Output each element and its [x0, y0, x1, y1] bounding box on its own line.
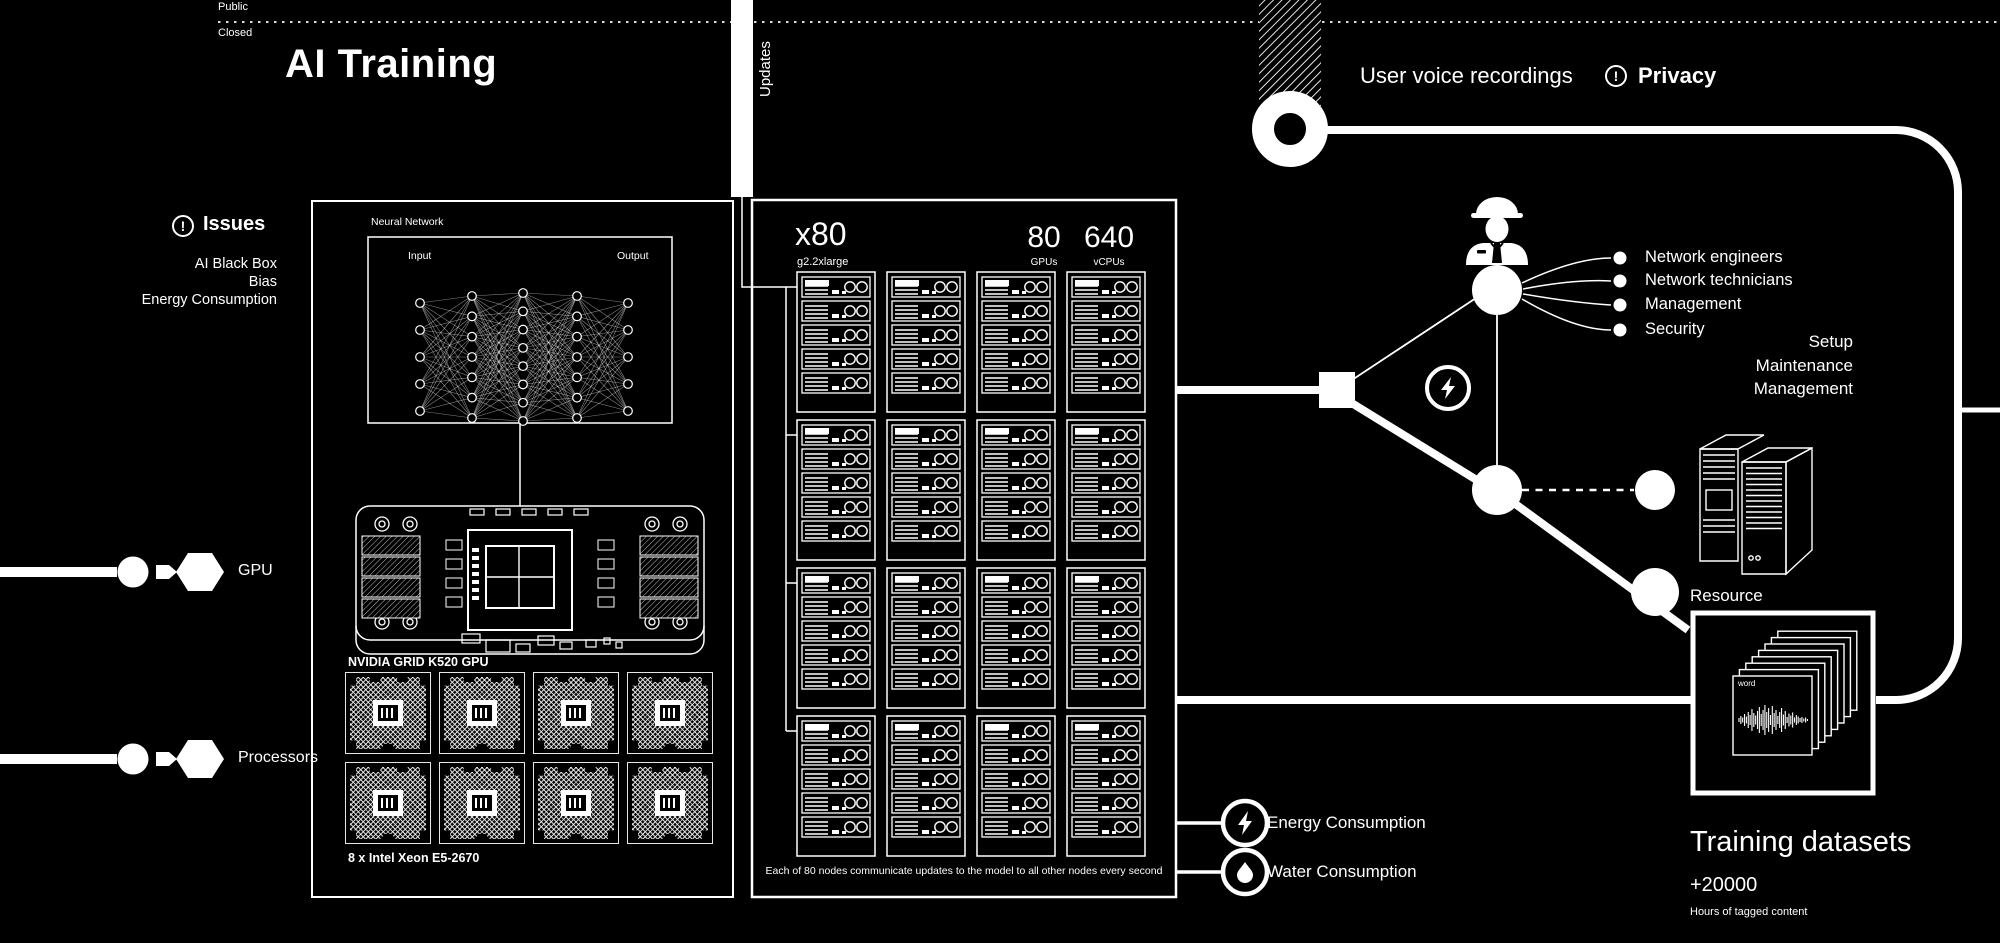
duty-management: Management [1754, 377, 1853, 401]
gpu-caption: NVIDIA GRID K520 GPU [348, 655, 489, 669]
xeon-chip [627, 762, 713, 844]
closed-label: Closed [218, 27, 252, 39]
xeon-chip [627, 672, 713, 754]
processors-legend-label: Processors [238, 749, 318, 767]
user-voice-label: User voice recordings [1360, 63, 1573, 89]
pointer-icon [156, 752, 177, 766]
voice-source-node [1263, 102, 1317, 156]
cluster-caption: Each of 80 nodes communicate updates to … [754, 865, 1174, 877]
xeon-processor-grid [345, 672, 725, 852]
processors-legend [0, 740, 224, 778]
duty-setup: Setup [1754, 330, 1853, 354]
chip-core [655, 790, 685, 816]
chip-die-icon [472, 795, 492, 811]
xeon-chip [533, 762, 619, 844]
ai-training-infographic: Public Closed AI Training Updates User v… [0, 0, 2000, 943]
chip-die-icon [566, 795, 586, 811]
chip-core [561, 790, 591, 816]
chip-die-icon [566, 705, 586, 721]
energy-label: Energy Consumption [1267, 813, 1426, 833]
server-cabinet-icon [1700, 435, 1812, 574]
chip-core [561, 700, 591, 726]
page-title: AI Training [285, 42, 497, 87]
chip-core [467, 700, 497, 726]
cpu-caption: 8 x Intel Xeon E5-2670 [348, 851, 479, 865]
voice-channel-hatch [1259, 0, 1321, 106]
resource-node-lower [1631, 568, 1679, 616]
datasets-subtitle: Hours of tagged content [1690, 906, 1807, 918]
gpu-top-connectors [470, 509, 588, 515]
chip-die-icon [660, 705, 680, 721]
chip-core [373, 790, 403, 816]
xeon-chip [533, 672, 619, 754]
instance-type: g2.2xlarge [797, 256, 848, 268]
staff-node [1472, 265, 1522, 315]
gpu-core [468, 530, 572, 630]
chip-core [655, 700, 685, 726]
output-label: Output [617, 250, 649, 262]
role-network-engineers: Network engineers [1645, 248, 1783, 267]
pointer-icon [156, 565, 177, 579]
vcpus-label: vCPUs [1076, 257, 1142, 268]
chip-die-icon [378, 795, 398, 811]
gpu-pins [472, 548, 479, 600]
water-icon [1223, 850, 1267, 894]
neural-network-label: Neural Network [371, 216, 443, 228]
chip-core [467, 790, 497, 816]
chip-die-icon [472, 705, 492, 721]
issues-title: Issues [203, 213, 265, 236]
input-label: Input [408, 250, 431, 262]
duty-maintenance: Maintenance [1754, 354, 1853, 378]
duties-list: Setup Maintenance Management [1754, 330, 1853, 401]
server-racks [797, 272, 1145, 856]
privacy-info-icon: ! [1605, 65, 1627, 87]
vcpus-value: 640 [1076, 221, 1142, 255]
updates-label: Updates [757, 41, 774, 97]
chip-die-icon [660, 795, 680, 811]
issues-list: AI Black Box Bias Energy Consumption [60, 255, 277, 309]
chip-core [373, 700, 403, 726]
power-icon [1427, 367, 1469, 409]
gpu-bottom-components [462, 634, 622, 652]
role-network-technicians: Network technicians [1645, 271, 1793, 290]
engineer-icon [1466, 197, 1528, 265]
datacenter-node [1635, 470, 1675, 510]
resource-node-upper [1472, 465, 1522, 515]
privacy-label: Privacy [1638, 63, 1716, 89]
gpu-ram-chips [446, 540, 614, 607]
diagram-canvas [0, 0, 2000, 943]
card-word-label: word [1738, 679, 1755, 688]
gpu-legend-label: GPU [238, 562, 273, 580]
updates-channel [731, 0, 753, 197]
resource-label: Resource [1690, 586, 1763, 606]
issue-item: AI Black Box [60, 255, 277, 273]
datasets-title: Training datasets [1690, 826, 1911, 859]
issue-item: Energy Consumption [60, 291, 277, 309]
hexagon-icon [176, 740, 224, 778]
gpus-label: GPUs [1014, 257, 1074, 268]
role-fan-lines [1522, 258, 1611, 330]
gpu-heatsink-left [362, 536, 420, 618]
updates-feed-line [742, 197, 797, 731]
role-management: Management [1645, 295, 1741, 314]
role-security: Security [1645, 320, 1705, 339]
issues-alert-icon: ! [172, 215, 194, 237]
gateway-square-node [1319, 372, 1355, 408]
neural-network-graphic [416, 289, 633, 426]
datasets-count: +20000 [1690, 874, 1757, 897]
gpus-value: 80 [1014, 221, 1074, 255]
energy-icon [1223, 801, 1267, 845]
issue-item: Bias [60, 273, 277, 291]
chip-die-icon [378, 705, 398, 721]
gpu-heatsink-right [640, 536, 698, 618]
xeon-chip [439, 672, 525, 754]
hexagon-icon [176, 553, 224, 591]
xeon-chip [345, 672, 431, 754]
xeon-chip [345, 762, 431, 844]
role-bullets [1614, 252, 1627, 337]
xeon-chip [439, 762, 525, 844]
public-label: Public [218, 1, 248, 13]
gpu-legend [0, 553, 224, 591]
gpu-board-illustration [356, 506, 704, 654]
cluster-count: x80 [795, 216, 847, 253]
water-label: Water Consumption [1267, 862, 1417, 882]
